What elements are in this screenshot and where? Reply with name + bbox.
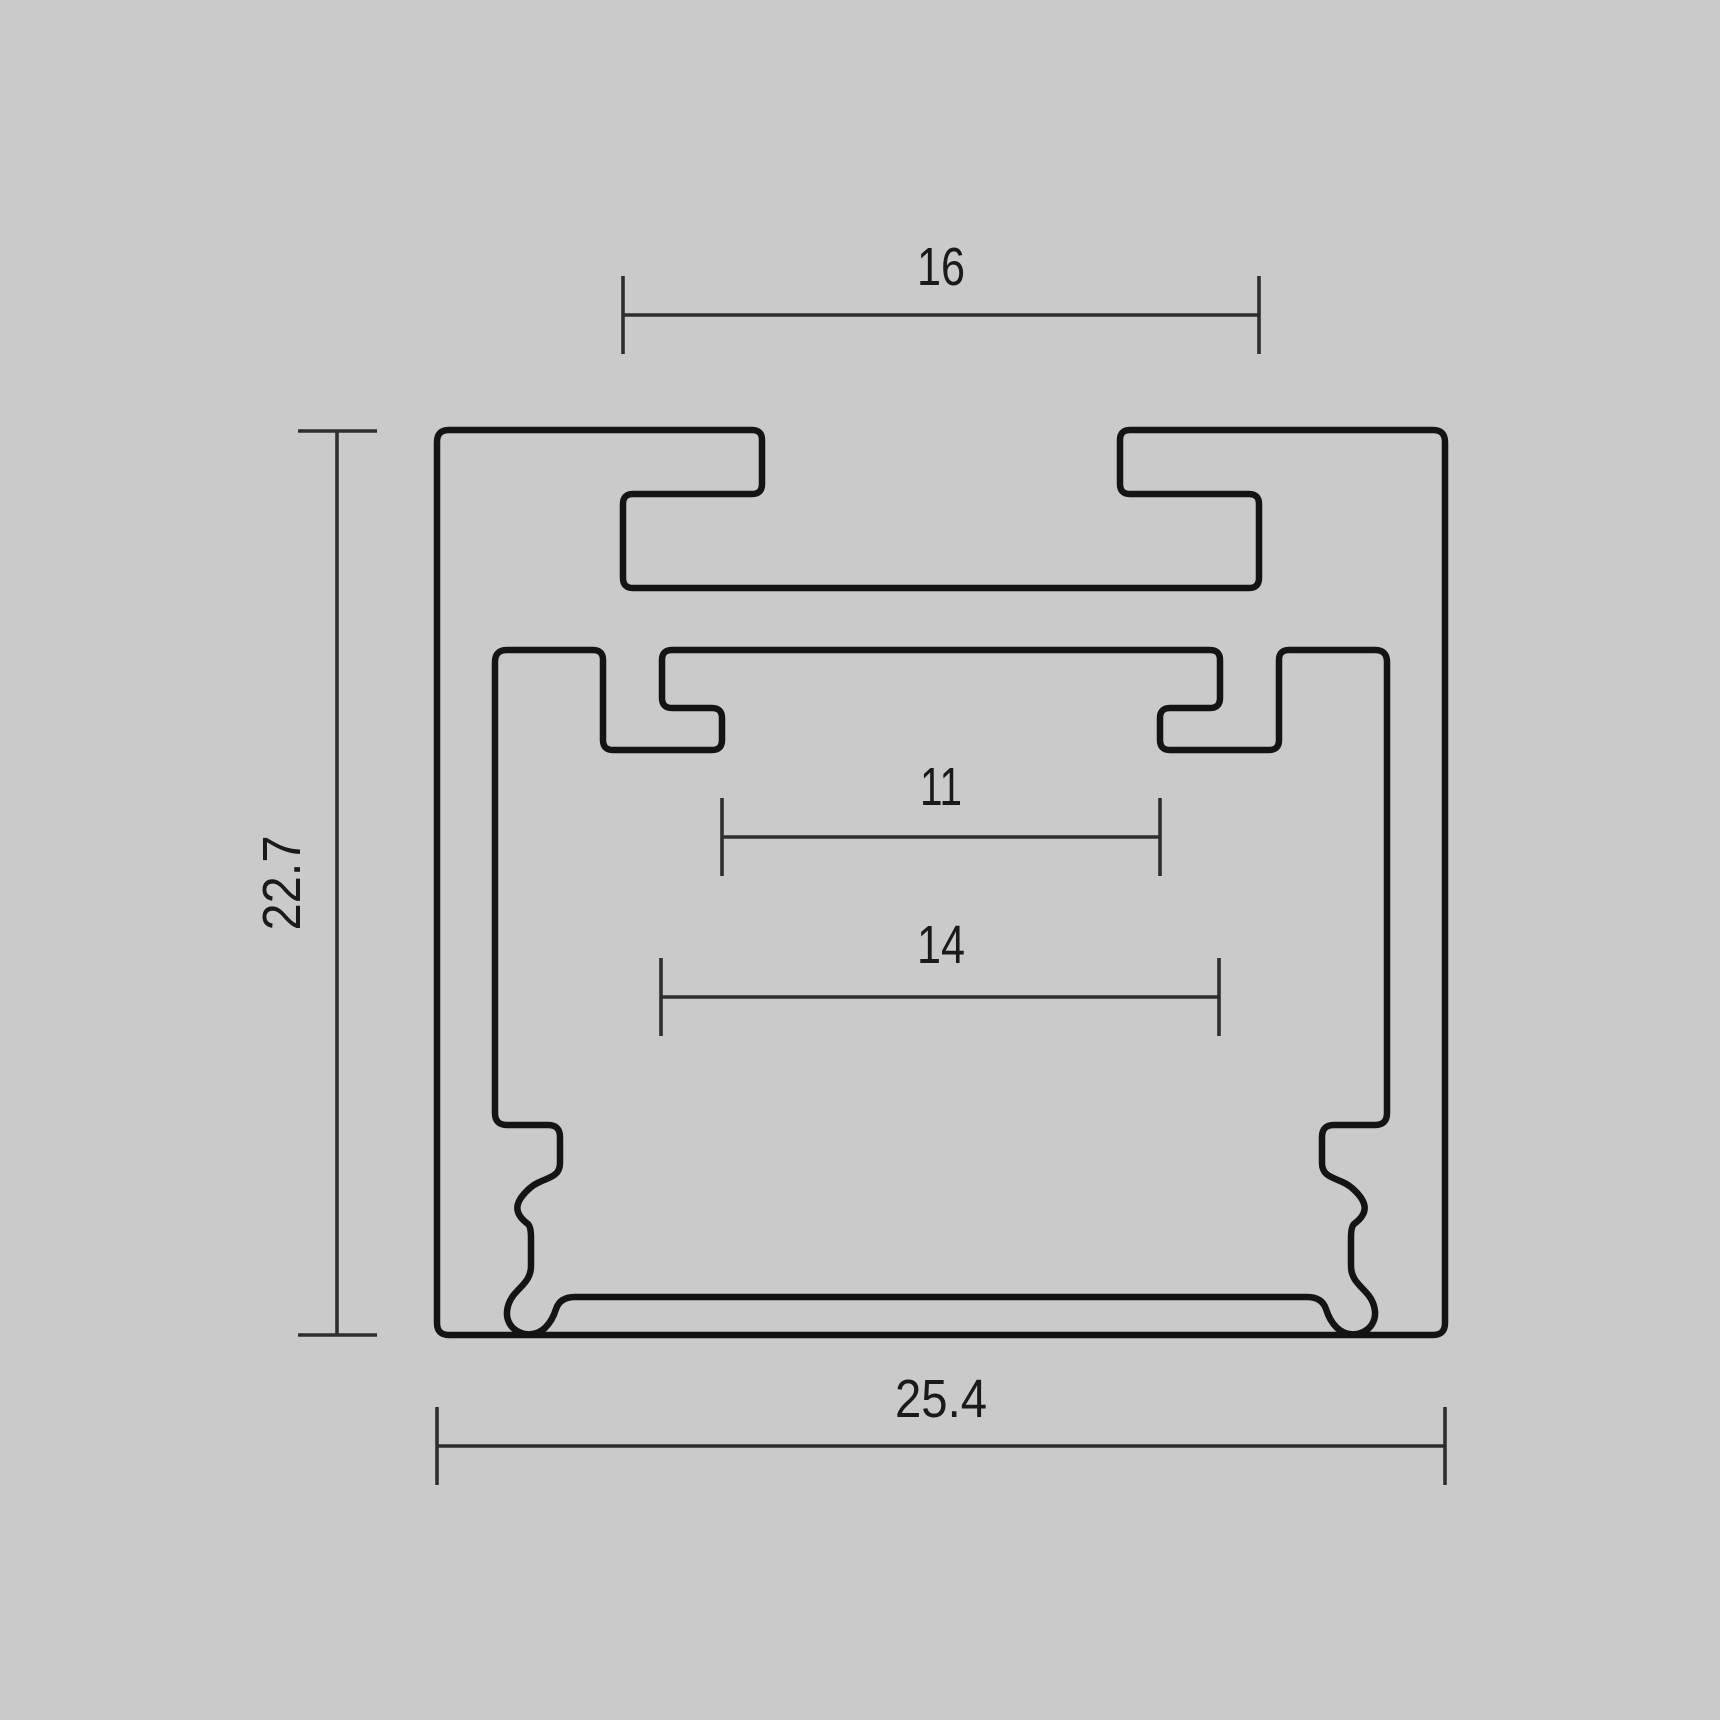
profile-inner-cavity-contour bbox=[495, 650, 1387, 1334]
dimension-clip-tip-width: 11 bbox=[722, 757, 1160, 876]
dimension-clip-base-width: 14 bbox=[661, 915, 1219, 1036]
dimension-overall-width: 25.4 bbox=[437, 1369, 1445, 1485]
dimension-overall-height: 22.7 bbox=[252, 431, 377, 1335]
profile-drawing-canvas: 16 22.7 11 14 25.4 bbox=[0, 0, 1720, 1720]
dimension-label: 11 bbox=[920, 757, 962, 817]
profile-outer-contour bbox=[437, 430, 1445, 1335]
dimension-label: 16 bbox=[917, 237, 965, 297]
dimension-label: 22.7 bbox=[252, 836, 312, 931]
drawing-stage: 16 22.7 11 14 25.4 bbox=[0, 0, 1720, 1720]
dimension-top-slot-width: 16 bbox=[623, 237, 1259, 354]
profile-cross-section bbox=[437, 430, 1445, 1335]
dimension-label: 25.4 bbox=[895, 1369, 987, 1429]
dimension-label: 14 bbox=[917, 915, 965, 975]
